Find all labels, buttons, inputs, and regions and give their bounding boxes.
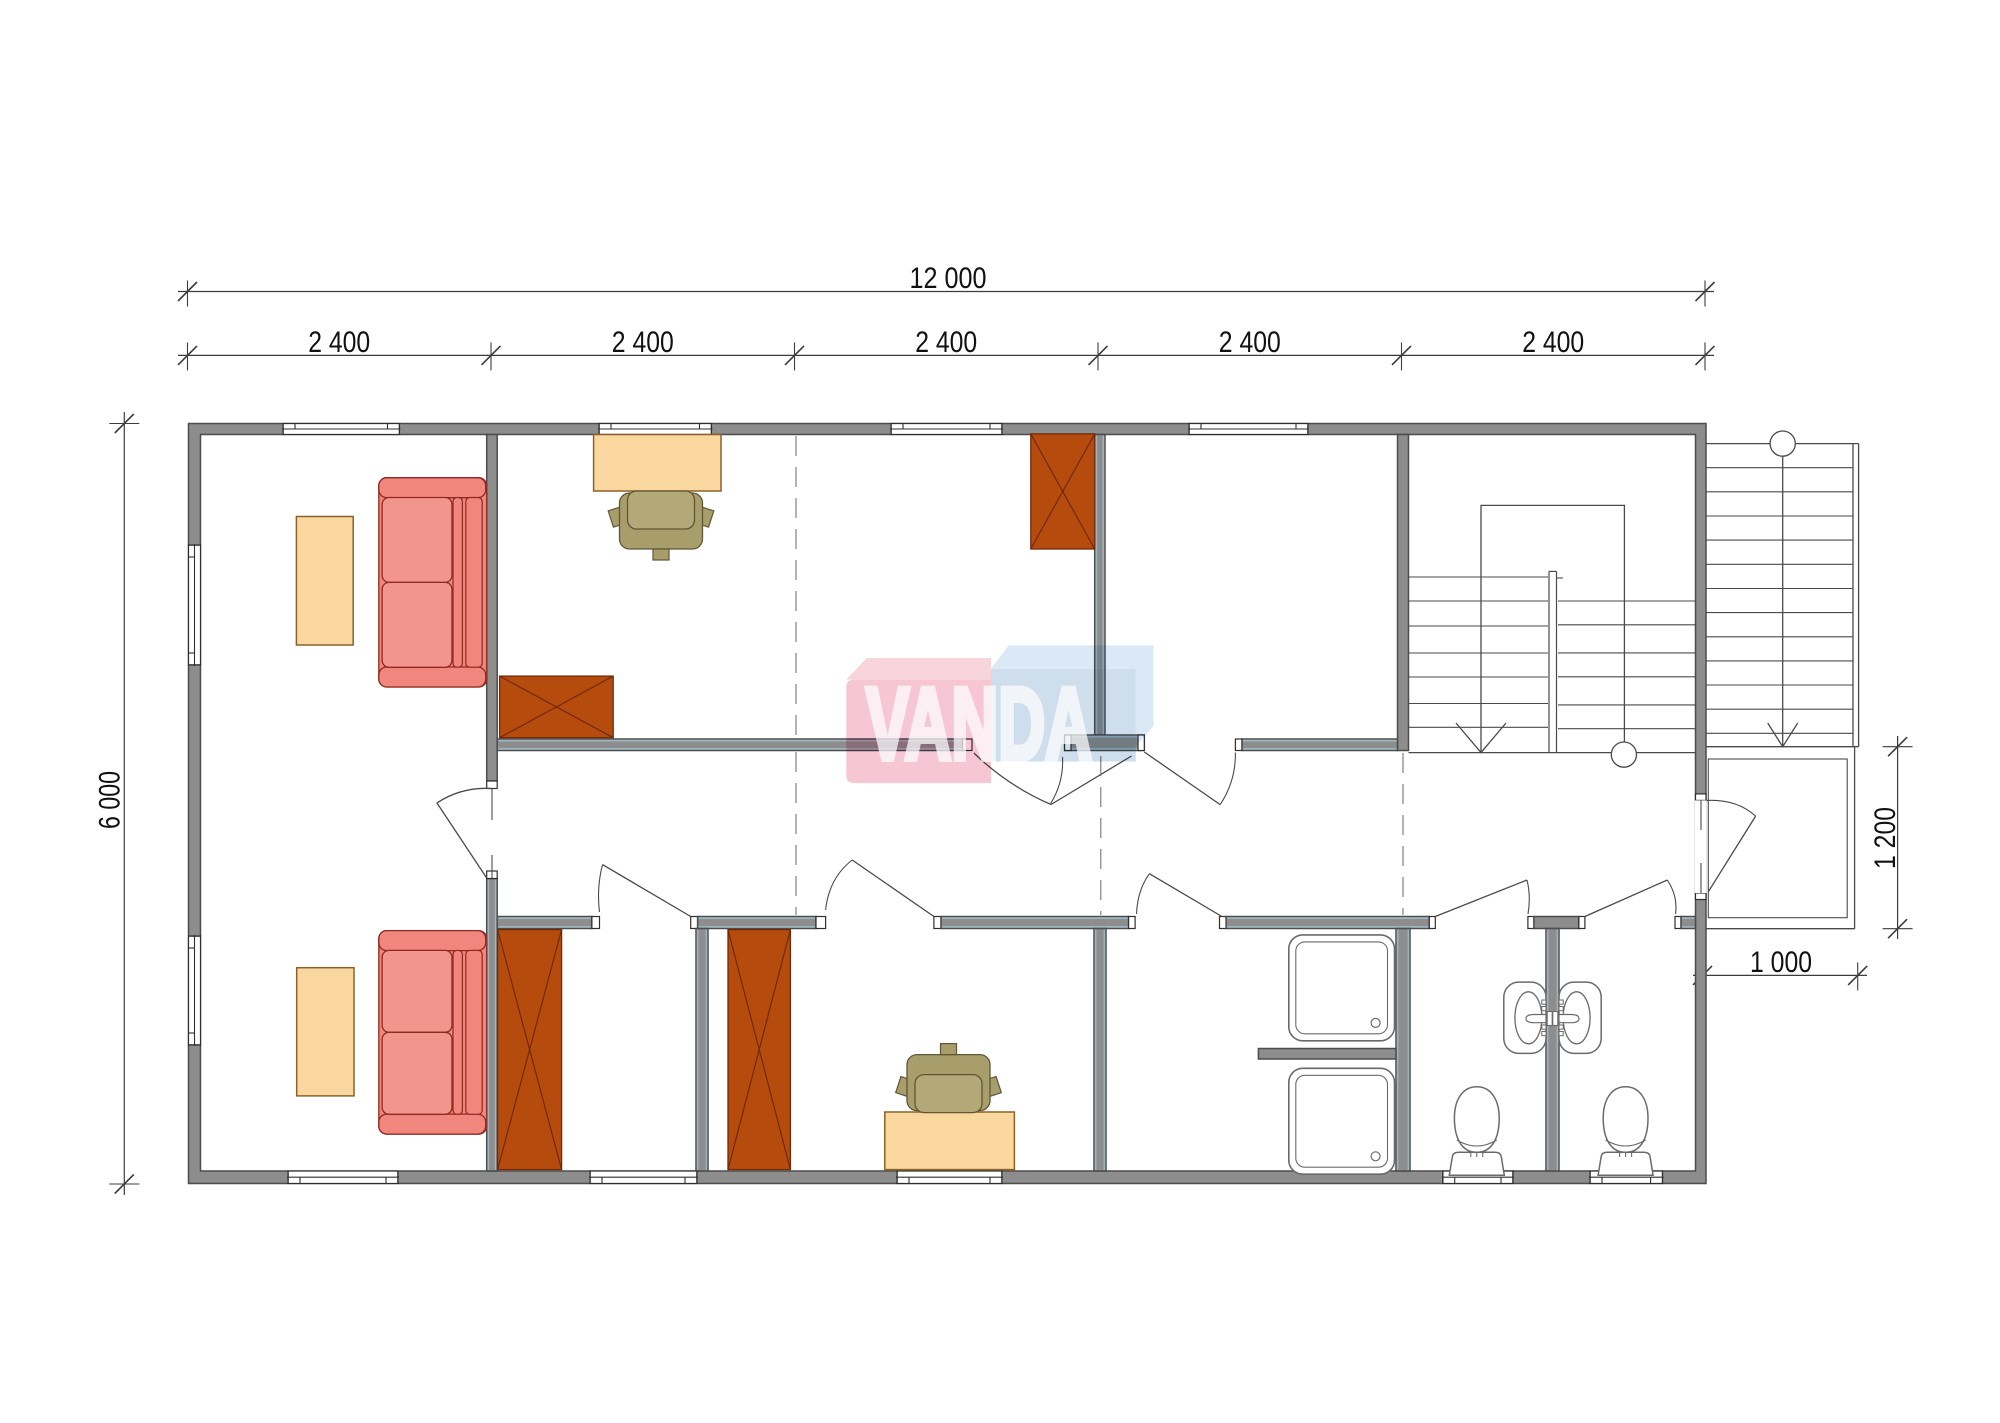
svg-text:2 400: 2 400 [612,326,674,359]
svg-text:1 000: 1 000 [1750,946,1812,979]
svg-text:1 200: 1 200 [1869,807,1902,869]
svg-text:2 400: 2 400 [1522,326,1584,359]
svg-text:VANDA: VANDA [866,667,1092,781]
svg-text:2 400: 2 400 [1219,326,1281,359]
svg-text:6 000: 6 000 [94,771,127,829]
svg-text:12 000: 12 000 [910,262,987,295]
svg-text:2 400: 2 400 [915,326,977,359]
svg-text:2 400: 2 400 [308,326,370,359]
